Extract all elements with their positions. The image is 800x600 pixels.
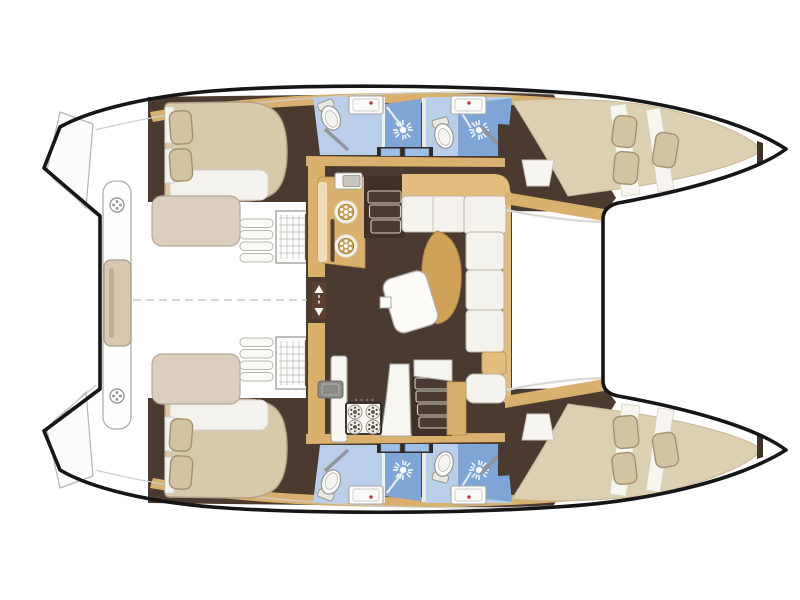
catamaran-floor-plan [0, 0, 800, 600]
aft-head [313, 96, 421, 155]
sofa-cushion [466, 232, 504, 270]
forward-cabin [498, 99, 763, 206]
storage-grate-icon [276, 211, 311, 263]
handrail [331, 219, 335, 262]
hull-window [405, 149, 429, 157]
aft-wall [308, 323, 325, 436]
pillow [169, 110, 193, 144]
sofa-end-cushion [466, 374, 506, 403]
sofa-cushion [466, 310, 504, 352]
pillow [611, 115, 638, 149]
sofa-armrest [482, 352, 506, 374]
companionway-arrows-icon [312, 282, 326, 319]
table-leg [380, 297, 391, 308]
floor-plan-image [0, 0, 800, 600]
counter-column [331, 356, 347, 442]
pillow [651, 131, 679, 168]
galley-block [318, 173, 365, 268]
port-companionway [364, 176, 404, 238]
pillow [169, 148, 193, 181]
sofa-cushion [402, 196, 466, 232]
sofa-cushion [466, 270, 504, 310]
pillow [613, 151, 640, 185]
sofa-backrest [402, 174, 510, 199]
washbasin-icon [451, 96, 486, 114]
sink-icon [318, 381, 343, 398]
stair-side-locker [447, 382, 466, 435]
washbasin-icon [349, 96, 383, 114]
transom-bench [104, 260, 131, 346]
oven [335, 173, 362, 189]
cabin-bench-seat [152, 196, 240, 246]
cabin-entry-step [522, 160, 554, 186]
sofa-corner-cushion [464, 196, 506, 234]
stove [346, 399, 381, 434]
bench-slot [109, 268, 114, 338]
hull-window [381, 149, 400, 157]
counter-edge [318, 182, 327, 262]
